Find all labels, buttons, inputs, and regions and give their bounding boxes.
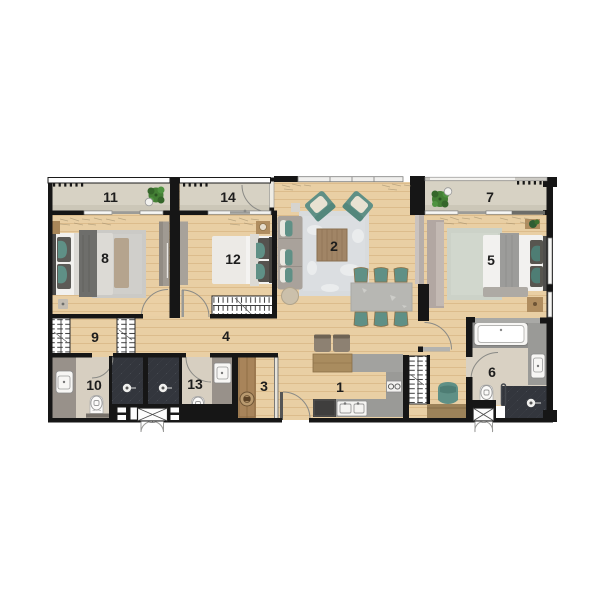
svg-text:7: 7 bbox=[486, 189, 494, 205]
svg-text:14: 14 bbox=[220, 189, 236, 205]
svg-text:12: 12 bbox=[225, 251, 241, 267]
svg-text:8: 8 bbox=[101, 250, 109, 266]
svg-text:6: 6 bbox=[488, 364, 496, 380]
svg-text:10: 10 bbox=[86, 377, 102, 393]
svg-text:4: 4 bbox=[222, 328, 230, 344]
svg-text:11: 11 bbox=[103, 189, 118, 205]
svg-text:1: 1 bbox=[336, 379, 344, 395]
svg-text:9: 9 bbox=[91, 329, 99, 345]
svg-text:3: 3 bbox=[260, 378, 268, 394]
svg-text:13: 13 bbox=[187, 376, 203, 392]
svg-text:5: 5 bbox=[487, 252, 495, 268]
svg-text:2: 2 bbox=[330, 238, 338, 254]
